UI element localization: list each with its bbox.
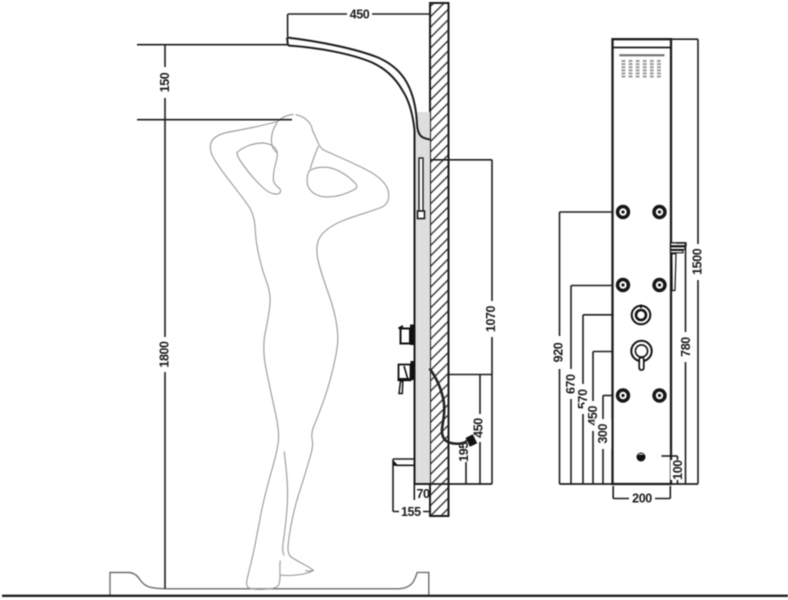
- svg-text:70: 70: [416, 487, 430, 501]
- svg-text:1500: 1500: [691, 248, 705, 275]
- svg-text:1800: 1800: [158, 341, 172, 368]
- svg-text:450: 450: [472, 418, 486, 438]
- svg-text:300: 300: [596, 424, 610, 444]
- svg-text:155: 155: [401, 505, 421, 519]
- svg-text:920: 920: [551, 342, 565, 362]
- svg-text:780: 780: [679, 337, 693, 357]
- svg-text:200: 200: [632, 492, 652, 506]
- svg-text:150: 150: [158, 72, 172, 92]
- svg-text:100: 100: [671, 460, 685, 480]
- svg-text:1070: 1070: [484, 305, 498, 332]
- svg-text:450: 450: [350, 8, 370, 22]
